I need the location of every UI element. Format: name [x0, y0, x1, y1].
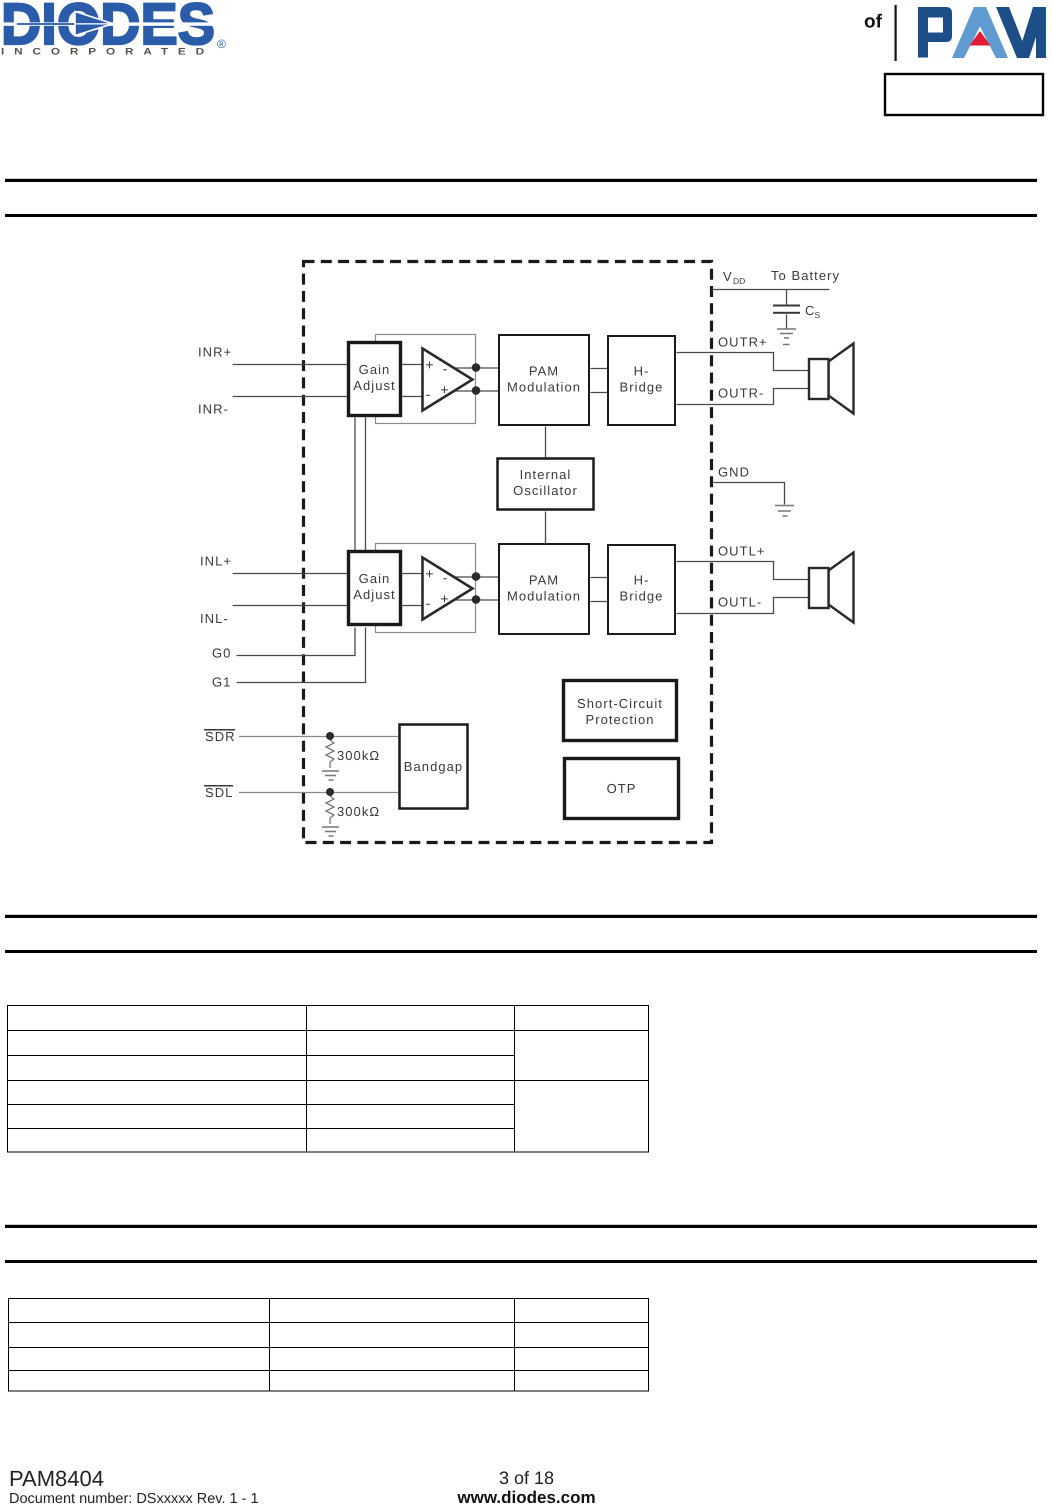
svg-text:SDL: SDL: [205, 785, 233, 800]
svg-text:Protection: Protection: [585, 712, 654, 727]
svg-text:Modulation: Modulation: [507, 380, 581, 395]
svg-text:SDR: SDR: [205, 729, 236, 744]
svg-text:INR+: INR+: [198, 345, 232, 360]
svg-text:-: -: [426, 595, 431, 611]
svg-text:300kΩ: 300kΩ: [337, 748, 380, 763]
svg-text:3 of 18: 3 of 18: [499, 1468, 554, 1488]
svg-text:OUTR+: OUTR+: [718, 335, 768, 350]
svg-text:Adjust: Adjust: [353, 378, 395, 393]
svg-text:DD: DD: [733, 276, 745, 286]
svg-text:+: +: [440, 591, 448, 607]
svg-text:INL-: INL-: [200, 611, 229, 626]
svg-text:OUTR-: OUTR-: [718, 386, 764, 401]
svg-text:+: +: [425, 566, 433, 582]
svg-text:www.diodes.com: www.diodes.com: [456, 1488, 595, 1505]
svg-text:V: V: [723, 269, 733, 284]
svg-text:Gain: Gain: [359, 362, 391, 377]
svg-text:To Battery: To Battery: [771, 268, 840, 283]
svg-text:Bandgap: Bandgap: [404, 759, 463, 774]
svg-text:Bridge: Bridge: [620, 380, 664, 395]
svg-text:PAM8404: PAM8404: [9, 1466, 104, 1491]
svg-text:H-: H-: [634, 573, 650, 588]
svg-text:Internal: Internal: [520, 467, 572, 482]
svg-text:G1: G1: [212, 675, 231, 690]
svg-text:OUTL+: OUTL+: [718, 544, 766, 559]
svg-text:Adjust: Adjust: [353, 587, 395, 602]
svg-text:+: +: [425, 357, 433, 373]
svg-text:INCORPORATED: INCORPORATED: [1, 47, 214, 58]
svg-text:Oscillator: Oscillator: [513, 483, 578, 498]
svg-text:Modulation: Modulation: [507, 589, 581, 604]
svg-text:-: -: [426, 386, 431, 402]
svg-text:-: -: [443, 570, 448, 586]
svg-text:Bridge: Bridge: [620, 589, 664, 604]
svg-text:PAM: PAM: [529, 364, 559, 379]
svg-text:-: -: [443, 361, 448, 377]
svg-text:+: +: [440, 382, 448, 398]
svg-text:OTP: OTP: [607, 781, 637, 796]
svg-text:S: S: [815, 310, 821, 320]
svg-text:Short-Circuit: Short-Circuit: [577, 696, 663, 711]
svg-text:Document number: DSxxxxx Rev.: Document number: DSxxxxx Rev. 1 - 1: [9, 1491, 259, 1505]
svg-text:of: of: [864, 12, 883, 33]
svg-text:INR-: INR-: [198, 402, 229, 417]
svg-text:H-: H-: [634, 364, 650, 379]
svg-text:Gain: Gain: [359, 571, 391, 586]
svg-text:INL+: INL+: [200, 554, 232, 569]
svg-text:OUTL-: OUTL-: [718, 595, 762, 610]
svg-text:®: ®: [217, 37, 226, 51]
svg-text:GND: GND: [718, 465, 750, 480]
svg-text:PAM: PAM: [529, 573, 559, 588]
svg-text:300kΩ: 300kΩ: [337, 804, 380, 819]
svg-text:G0: G0: [212, 646, 231, 661]
